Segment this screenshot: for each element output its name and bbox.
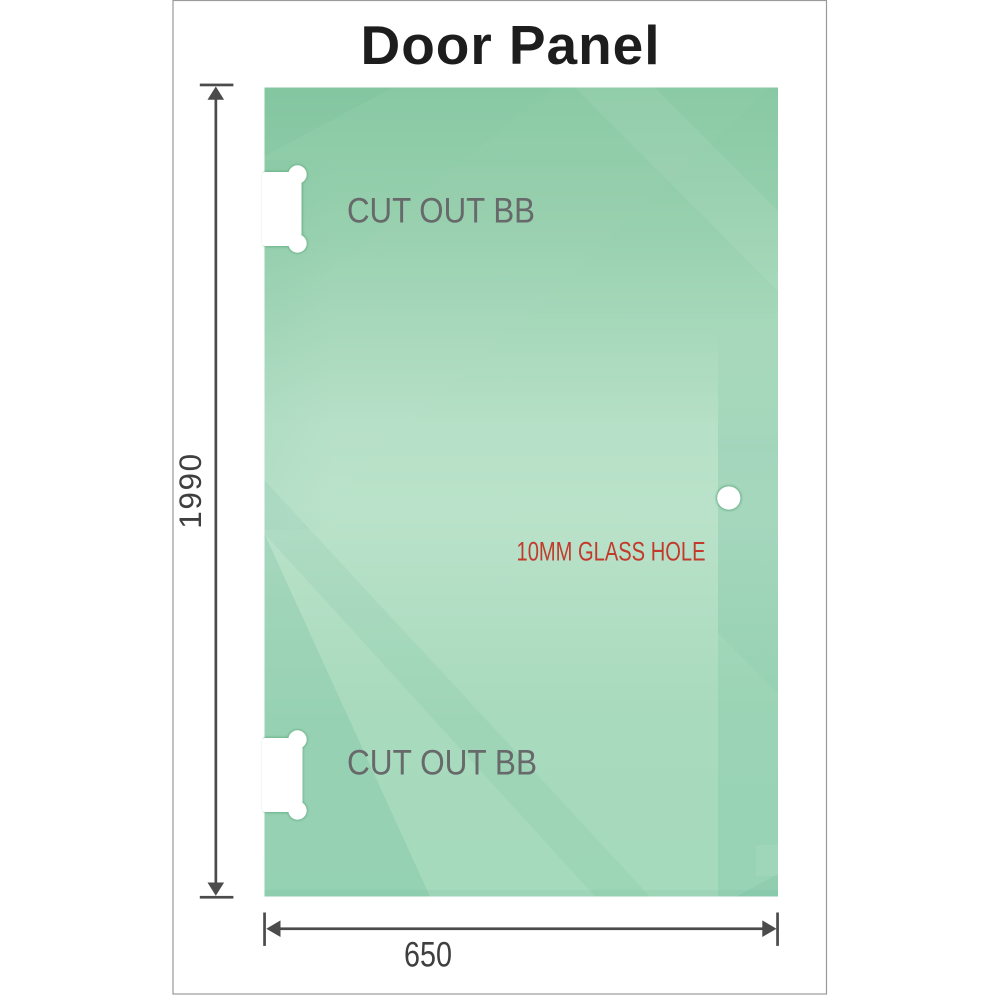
svg-text:CUT OUT BB: CUT OUT BB: [347, 192, 535, 231]
svg-text:650: 650: [404, 936, 452, 975]
svg-text:CUT OUT BB: CUT OUT BB: [347, 744, 537, 783]
svg-text:Door Panel: Door Panel: [361, 14, 660, 76]
svg-text:1990: 1990: [172, 454, 208, 529]
svg-text:10MM GLASS HOLE: 10MM GLASS HOLE: [517, 536, 706, 566]
